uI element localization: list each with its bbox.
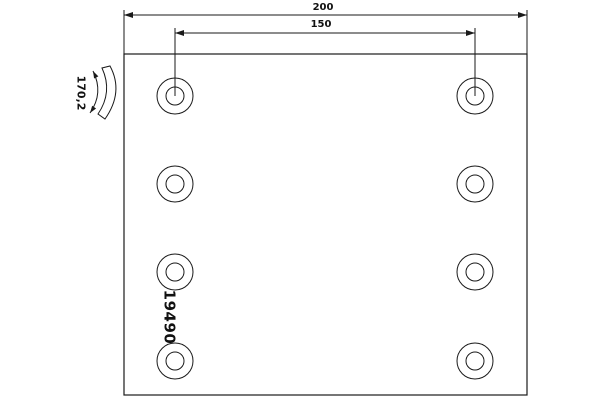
drawing-svg	[0, 0, 600, 400]
curvature-arrow	[90, 71, 98, 113]
hole-spacing-label: 150	[311, 20, 332, 30]
lining-plate-outline	[124, 54, 527, 395]
lining-cross-section	[98, 66, 116, 119]
dimension-overall-width	[124, 10, 527, 54]
technical-drawing-canvas: 200 150 170,2 19490	[0, 0, 600, 400]
overall-width-label: 200	[313, 3, 334, 13]
part-number-label: 19490	[162, 290, 177, 345]
curvature-icon	[90, 66, 116, 119]
arc-radius-label: 170,2	[76, 76, 87, 111]
